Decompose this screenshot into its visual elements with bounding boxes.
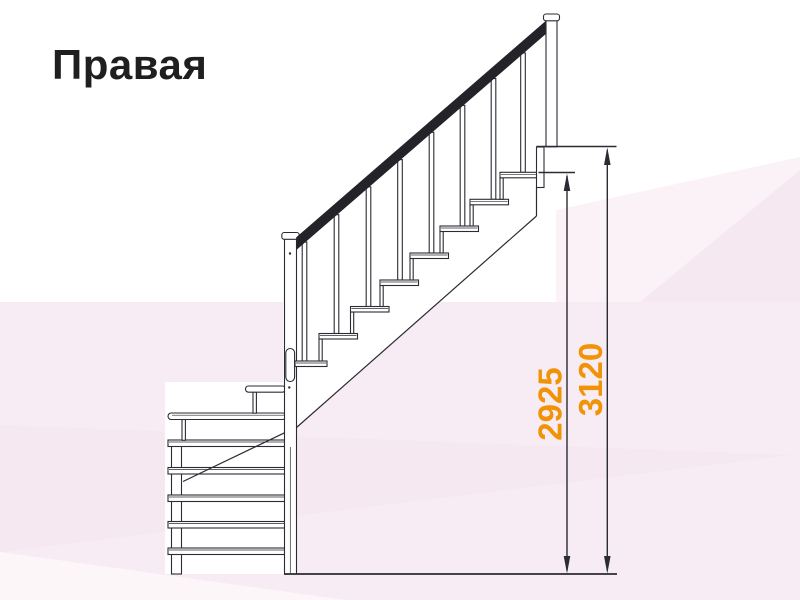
riser	[319, 339, 322, 361]
riser	[351, 312, 354, 334]
staircase-drawing-page: 3120 2925 Правая	[0, 0, 800, 600]
baluster	[429, 132, 434, 253]
arrow-up-icon	[564, 174, 571, 192]
tread	[351, 307, 390, 313]
baluster	[398, 160, 403, 280]
tread	[440, 226, 479, 232]
riser	[380, 286, 383, 307]
riser	[410, 259, 413, 281]
winder-plank	[168, 522, 285, 529]
riser	[500, 178, 503, 200]
baluster	[521, 53, 526, 172]
winder-riser	[182, 419, 185, 440]
winder-tread	[246, 386, 286, 392]
top-post-cap	[544, 14, 560, 21]
winder-plank	[168, 548, 285, 555]
riser	[440, 232, 443, 254]
winder-riser	[253, 392, 256, 413]
tread	[295, 361, 327, 367]
screw-dot	[288, 386, 290, 388]
winder-plank	[168, 495, 285, 502]
landing-fascia	[537, 147, 545, 188]
tread	[380, 280, 419, 286]
winder-silhouette	[165, 382, 297, 574]
staircase-diagram: 3120 2925	[0, 0, 800, 600]
tread	[470, 199, 509, 205]
dimension-label-3120: 3120	[572, 343, 609, 416]
baluster	[334, 215, 339, 334]
winder-bullnose-tread	[168, 413, 286, 420]
page-title: Правая	[52, 42, 207, 88]
top-post-body	[546, 20, 557, 147]
lower-handrail-end-cap	[286, 349, 295, 382]
top-post	[544, 14, 560, 147]
newel-post	[282, 233, 299, 575]
winder-plank	[168, 468, 285, 475]
screw-dot	[289, 252, 291, 254]
baluster	[460, 105, 465, 226]
baluster	[491, 79, 496, 200]
tread	[500, 172, 539, 178]
baluster	[366, 187, 371, 307]
tread	[410, 253, 449, 259]
tread	[319, 334, 358, 340]
baluster	[302, 242, 307, 361]
arrow-up-icon	[604, 148, 611, 166]
riser	[470, 205, 473, 226]
dimension-label-2925: 2925	[532, 367, 569, 440]
